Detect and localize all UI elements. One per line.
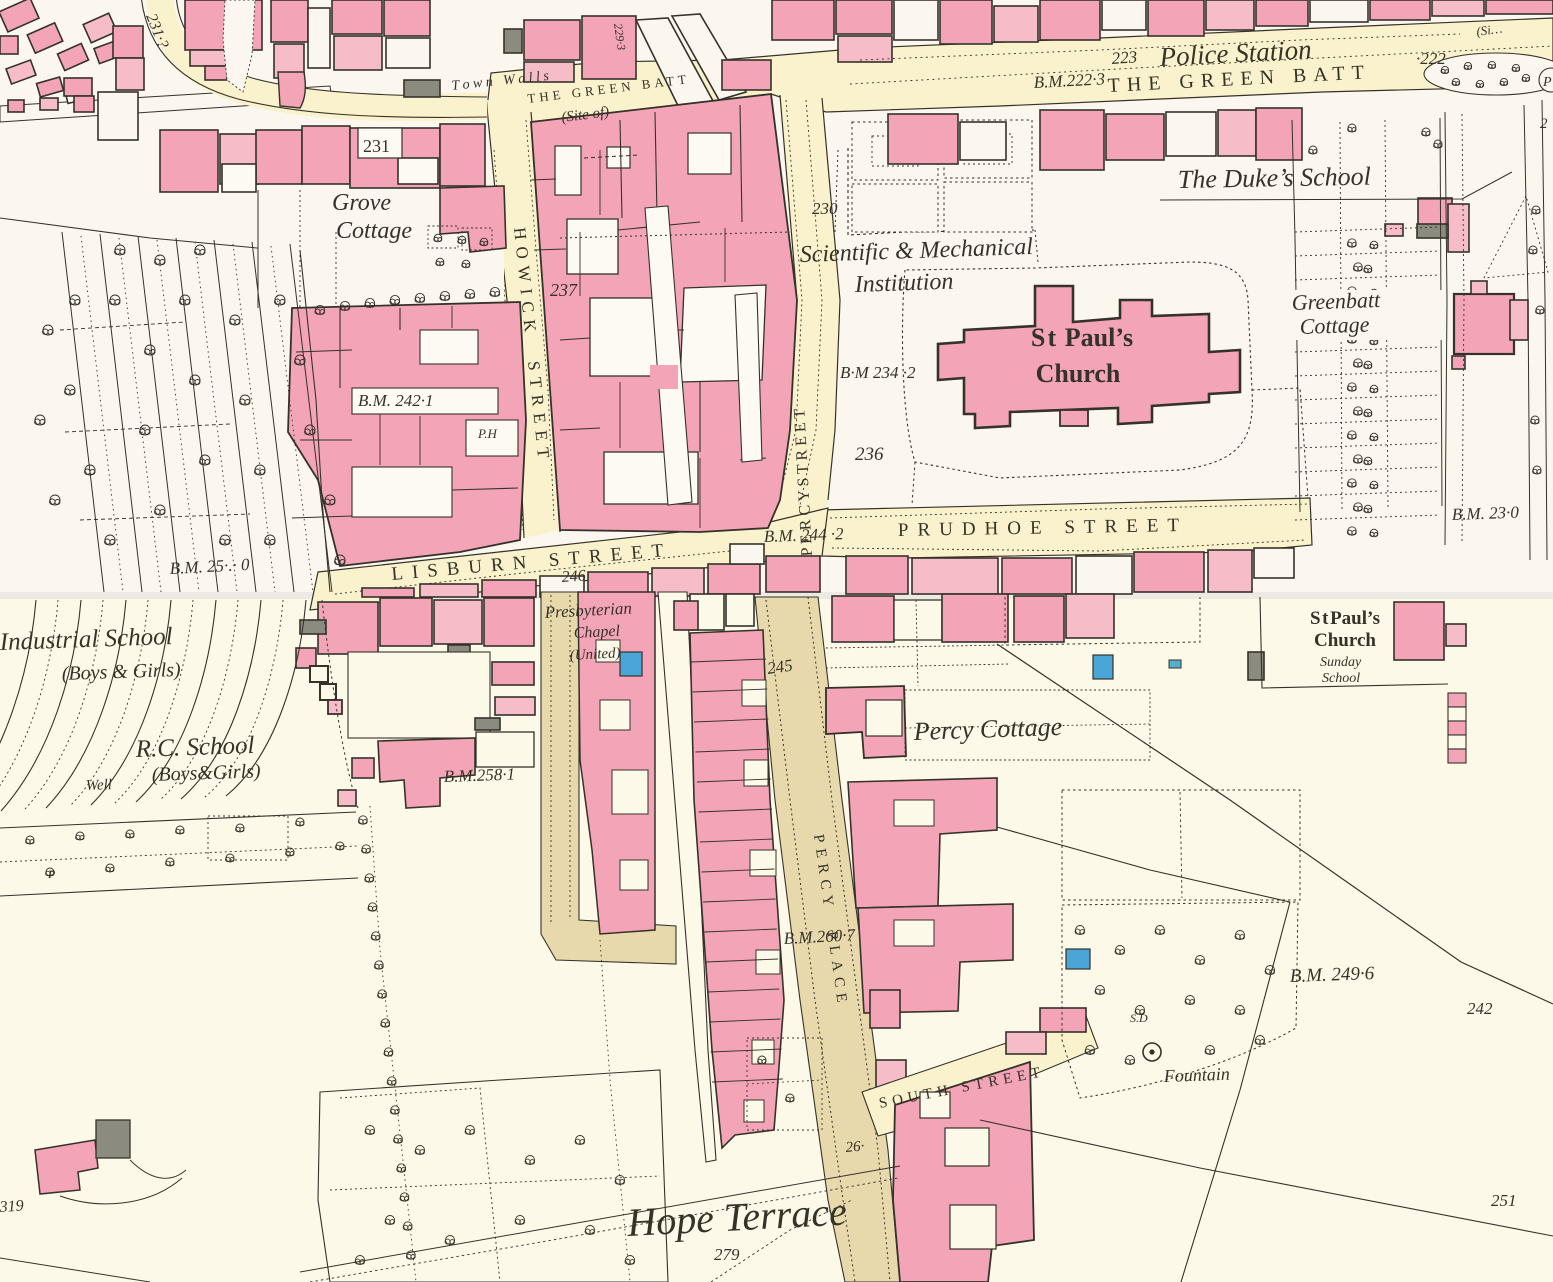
svg-text:Cottage: Cottage (1299, 312, 1370, 339)
svg-text:B.M. 23·0: B.M. 23·0 (1451, 503, 1519, 524)
svg-text:School: School (1322, 671, 1360, 686)
svg-text:B.M.258·1: B.M.258·1 (443, 765, 515, 786)
svg-text:237: 237 (550, 280, 578, 300)
svg-text:(Boys&Girls): (Boys&Girls) (151, 760, 261, 786)
svg-text:·222: ·222 (1416, 49, 1446, 68)
svg-text:S.D: S.D (1130, 1011, 1148, 1025)
svg-text:242: 242 (1467, 999, 1493, 1018)
svg-text:R.C. School: R.C. School (134, 732, 255, 763)
svg-text:Chapel: Chapel (573, 623, 621, 642)
svg-text:B.M. 249·6: B.M. 249·6 (1289, 963, 1375, 987)
svg-text:Institution: Institution (853, 269, 954, 298)
svg-text:245: 245 (766, 656, 794, 678)
svg-text:(United): (United) (569, 645, 621, 664)
svg-text:Grove: Grove (332, 190, 391, 216)
svg-text:Church: Church (1314, 630, 1376, 651)
svg-text:Percy Cottage: Percy Cottage (912, 712, 1062, 746)
svg-text:223: 223 (1111, 47, 1138, 68)
svg-text:2: 2 (1540, 116, 1548, 132)
svg-text:S t Paul’s: S t Paul’s (1310, 608, 1380, 629)
svg-text:230: 230 (812, 199, 838, 218)
svg-text:P: P (1542, 75, 1552, 90)
svg-text:B.M. 242·1: B.M. 242·1 (358, 391, 434, 410)
svg-text:Cottage: Cottage (336, 218, 412, 244)
svg-text:P.H: P.H (477, 426, 498, 441)
svg-text:(Boys & Girls): (Boys & Girls) (61, 659, 181, 685)
svg-text:231: 231 (363, 136, 390, 156)
svg-text:Well: Well (86, 777, 113, 794)
svg-text:S t Paul’s: S t Paul’s (1031, 323, 1133, 352)
svg-text:Fountain: Fountain (1162, 1064, 1230, 1086)
svg-text:B·M 234 ·2: B·M 234 ·2 (840, 363, 916, 382)
svg-text:B.M. 244 ·2: B.M. 244 ·2 (763, 524, 844, 546)
svg-text:236: 236 (855, 444, 884, 465)
svg-text:279: 279 (714, 1245, 740, 1264)
svg-text:319: 319 (0, 1197, 24, 1216)
svg-text:Church: Church (1036, 359, 1121, 388)
svg-text:246: 246 (561, 567, 586, 586)
svg-text:The Duke’s School: The Duke’s School (1178, 162, 1372, 194)
svg-text:251: 251 (1491, 1191, 1517, 1210)
svg-text:26·: 26· (845, 1138, 865, 1156)
svg-text:Sunday: Sunday (1320, 655, 1362, 670)
svg-text:B.M.260·7: B.M.260·7 (783, 925, 857, 948)
svg-text:P: P (47, 867, 56, 881)
